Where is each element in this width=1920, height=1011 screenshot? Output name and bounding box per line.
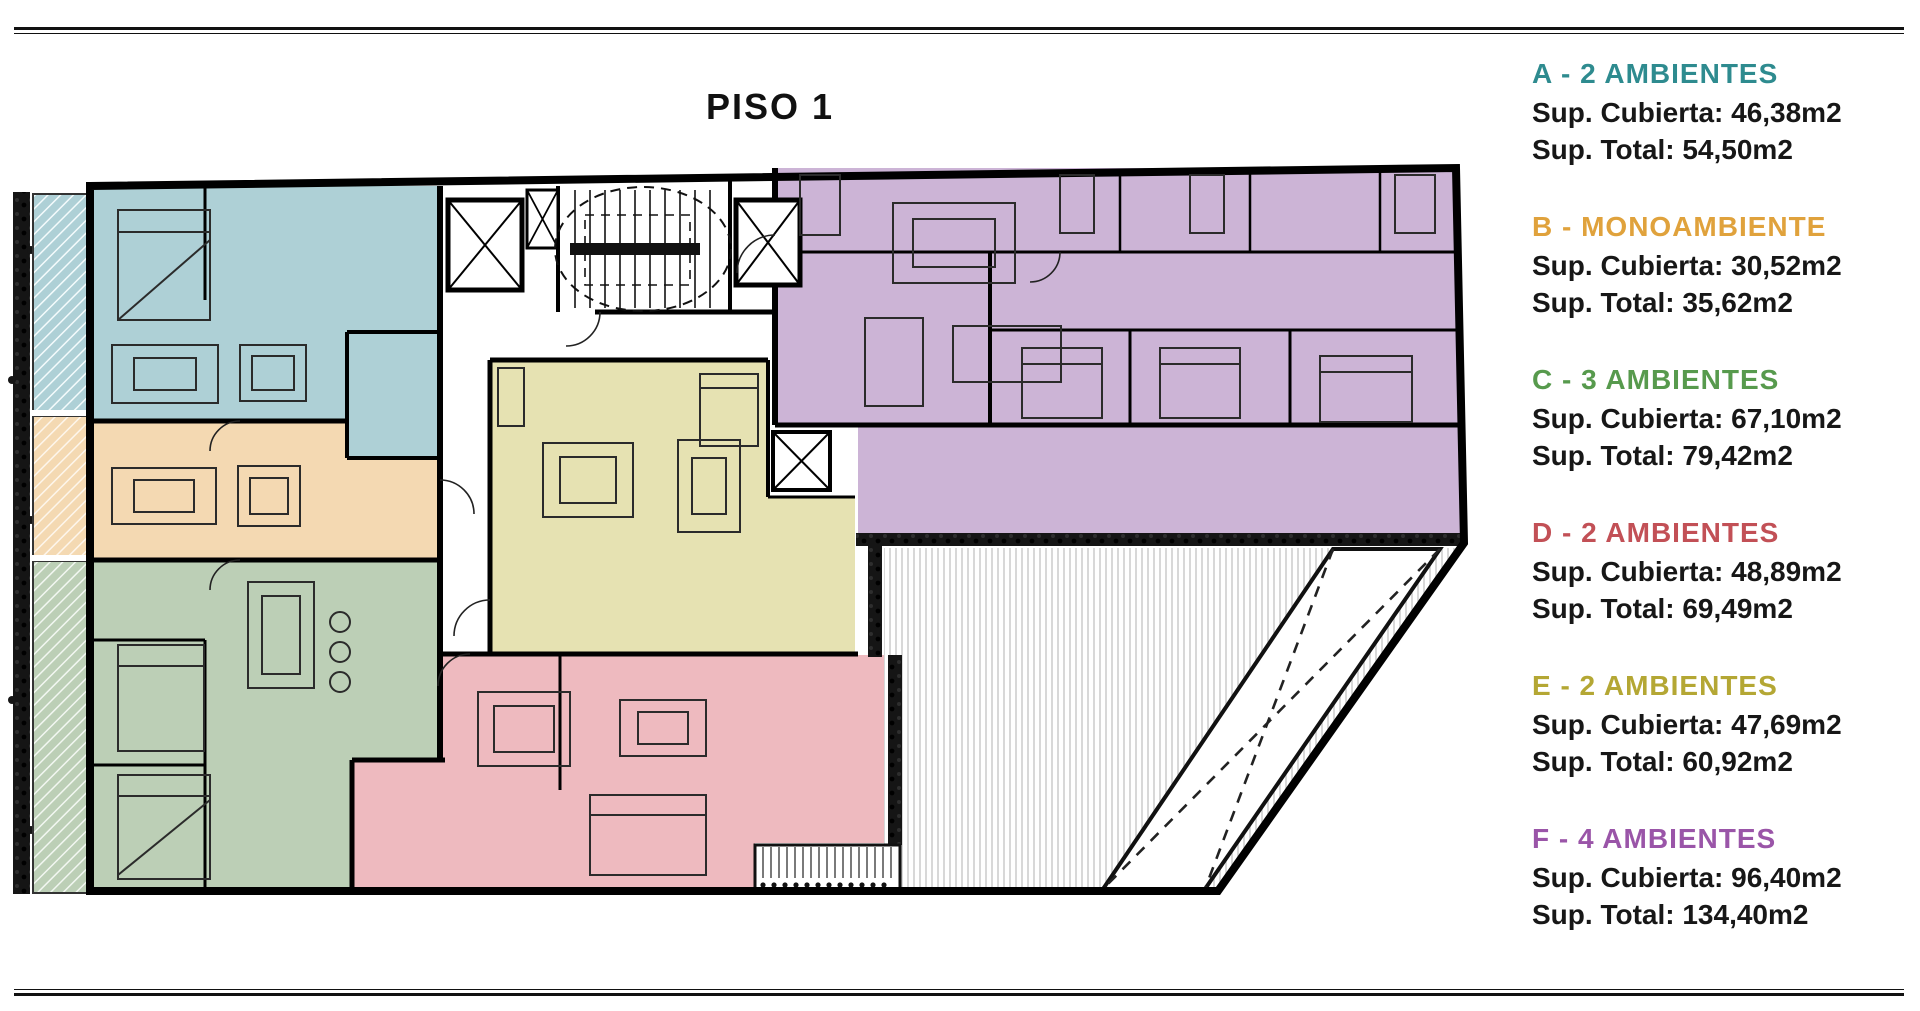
legend-item-b: B - MONOAMBIENTE Sup. Cubierta: 30,52m2 … — [1532, 211, 1907, 321]
floorplan-page: PISO 1 — [0, 0, 1920, 1011]
stair-icon — [555, 187, 731, 311]
legend-item-a: A - 2 AMBIENTES Sup. Cubierta: 46,38m2 S… — [1532, 58, 1907, 168]
elevator-right-icon — [736, 200, 800, 285]
courtyard-vegetation-top — [856, 533, 1462, 546]
legend-item-f-covered: Sup. Cubierta: 96,40m2 — [1532, 859, 1907, 896]
left-vegetation-strip — [8, 192, 35, 894]
legend-item-f-title: F - 4 AMBIENTES — [1532, 823, 1907, 855]
elevator-left-icon — [448, 200, 522, 290]
legend-item-d-total: Sup. Total: 69,49m2 — [1532, 590, 1907, 627]
courtyard-stair — [755, 845, 900, 891]
legend-item-e-covered: Sup. Cubierta: 47,69m2 — [1532, 706, 1907, 743]
legend-item-d: D - 2 AMBIENTES Sup. Cubierta: 48,89m2 S… — [1532, 517, 1907, 627]
patio-x-icon — [773, 432, 830, 490]
legend-item-a-total: Sup. Total: 54,50m2 — [1532, 131, 1907, 168]
legend-item-b-total: Sup. Total: 35,62m2 — [1532, 284, 1907, 321]
legend-item-a-title: A - 2 AMBIENTES — [1532, 58, 1907, 90]
apartment-a-region — [90, 186, 440, 458]
legend-item-e-title: E - 2 AMBIENTES — [1532, 670, 1907, 702]
shaft-x-icon — [527, 190, 558, 248]
legend-item-a-covered: Sup. Cubierta: 46,38m2 — [1532, 94, 1907, 131]
legend-item-b-covered: Sup. Cubierta: 30,52m2 — [1532, 247, 1907, 284]
legend-item-d-covered: Sup. Cubierta: 48,89m2 — [1532, 553, 1907, 590]
legend-item-f-total: Sup. Total: 134,40m2 — [1532, 896, 1907, 933]
legend-item-c-title: C - 3 AMBIENTES — [1532, 364, 1907, 396]
legend-item-f: F - 4 AMBIENTES Sup. Cubierta: 96,40m2 S… — [1532, 823, 1907, 933]
legend-item-e: E - 2 AMBIENTES Sup. Cubierta: 47,69m2 S… — [1532, 670, 1907, 780]
legend-item-c-covered: Sup. Cubierta: 67,10m2 — [1532, 400, 1907, 437]
legend-item-c: C - 3 AMBIENTES Sup. Cubierta: 67,10m2 S… — [1532, 364, 1907, 474]
legend-item-c-total: Sup. Total: 79,42m2 — [1532, 437, 1907, 474]
legend-item-e-total: Sup. Total: 60,92m2 — [1532, 743, 1907, 780]
legend-item-d-title: D - 2 AMBIENTES — [1532, 517, 1907, 549]
legend-item-b-title: B - MONOAMBIENTE — [1532, 211, 1907, 243]
legend: A - 2 AMBIENTES Sup. Cubierta: 46,38m2 S… — [1532, 58, 1907, 976]
balcony-strip-left — [31, 194, 91, 893]
